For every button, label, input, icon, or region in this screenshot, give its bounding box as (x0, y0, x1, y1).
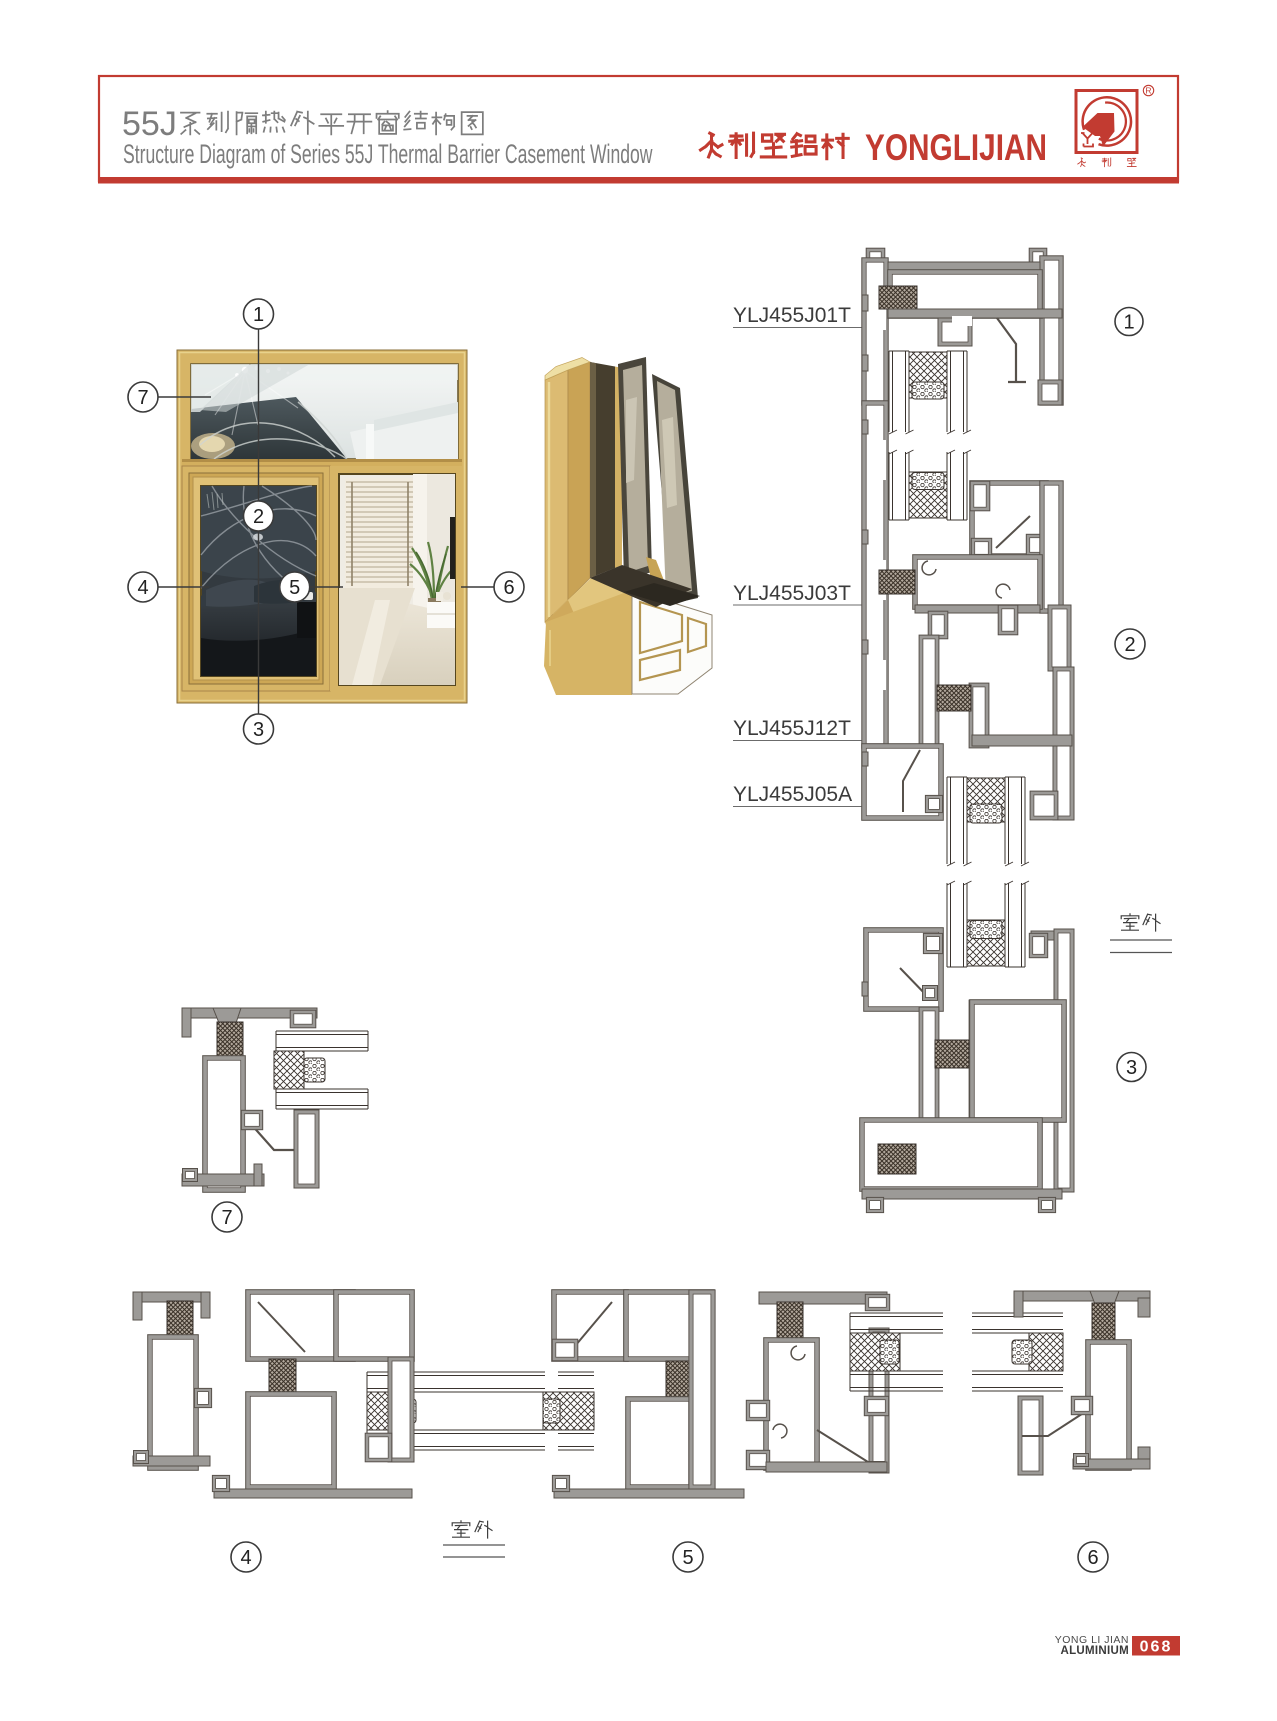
svg-text:YLJ455J12T: YLJ455J12T (733, 717, 851, 740)
svg-text:6: 6 (503, 577, 514, 599)
svg-text:7: 7 (137, 387, 148, 409)
svg-text:3: 3 (253, 719, 264, 741)
svg-text:55J: 55J (122, 105, 177, 143)
svg-text:R: R (1145, 86, 1151, 96)
svg-text:3: 3 (1126, 1057, 1137, 1079)
svg-text:2: 2 (1124, 634, 1135, 656)
svg-text:4: 4 (240, 1547, 251, 1569)
svg-text:068: 068 (1140, 1639, 1173, 1656)
svg-text:5: 5 (289, 577, 300, 599)
svg-text:7: 7 (221, 1207, 232, 1229)
svg-text:2: 2 (253, 506, 264, 528)
svg-text:YONGLIJIAN: YONGLIJIAN (865, 128, 1047, 169)
svg-text:1: 1 (1123, 312, 1134, 334)
svg-text:ALUMINIUM: ALUMINIUM (1061, 1645, 1130, 1657)
svg-text:YLJ455J01T: YLJ455J01T (733, 304, 851, 327)
svg-text:Structure Diagram of Series 55: Structure Diagram of Series 55J Thermal … (123, 139, 653, 168)
svg-text:5: 5 (682, 1547, 693, 1569)
svg-text:4: 4 (137, 577, 148, 599)
svg-text:1: 1 (253, 304, 264, 326)
svg-text:6: 6 (1087, 1547, 1098, 1569)
svg-text:YLJ455J03T: YLJ455J03T (733, 582, 851, 605)
svg-text:YLJ455J05A: YLJ455J05A (733, 783, 852, 806)
